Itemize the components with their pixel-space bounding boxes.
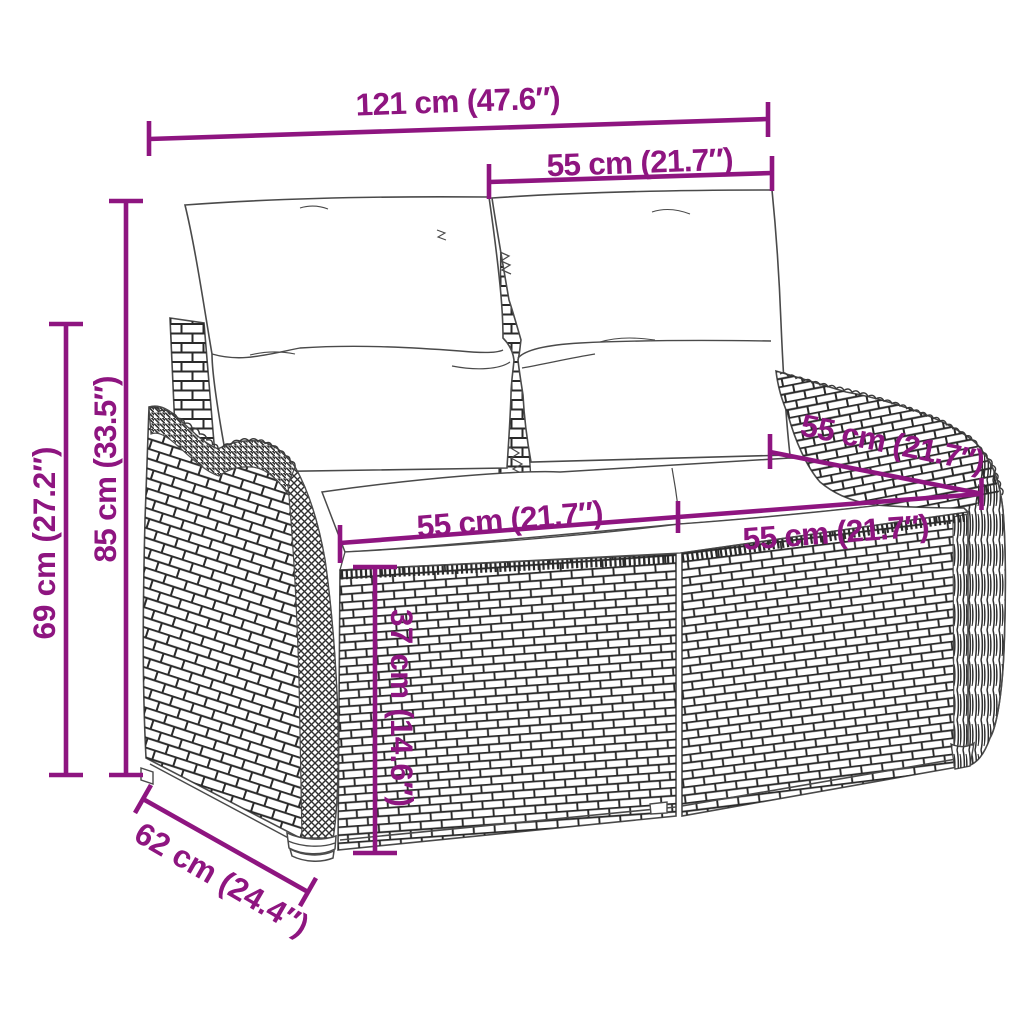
svg-text:85 cm (33.5″): 85 cm (33.5″) xyxy=(87,376,123,563)
svg-text:55 cm (21.7″): 55 cm (21.7″) xyxy=(546,141,734,184)
svg-text:121 cm (47.6″): 121 cm (47.6″) xyxy=(355,79,561,122)
svg-text:69 cm (27.2″): 69 cm (27.2″) xyxy=(26,447,62,640)
svg-text:37 cm (14.6″): 37 cm (14.6″) xyxy=(384,609,420,807)
